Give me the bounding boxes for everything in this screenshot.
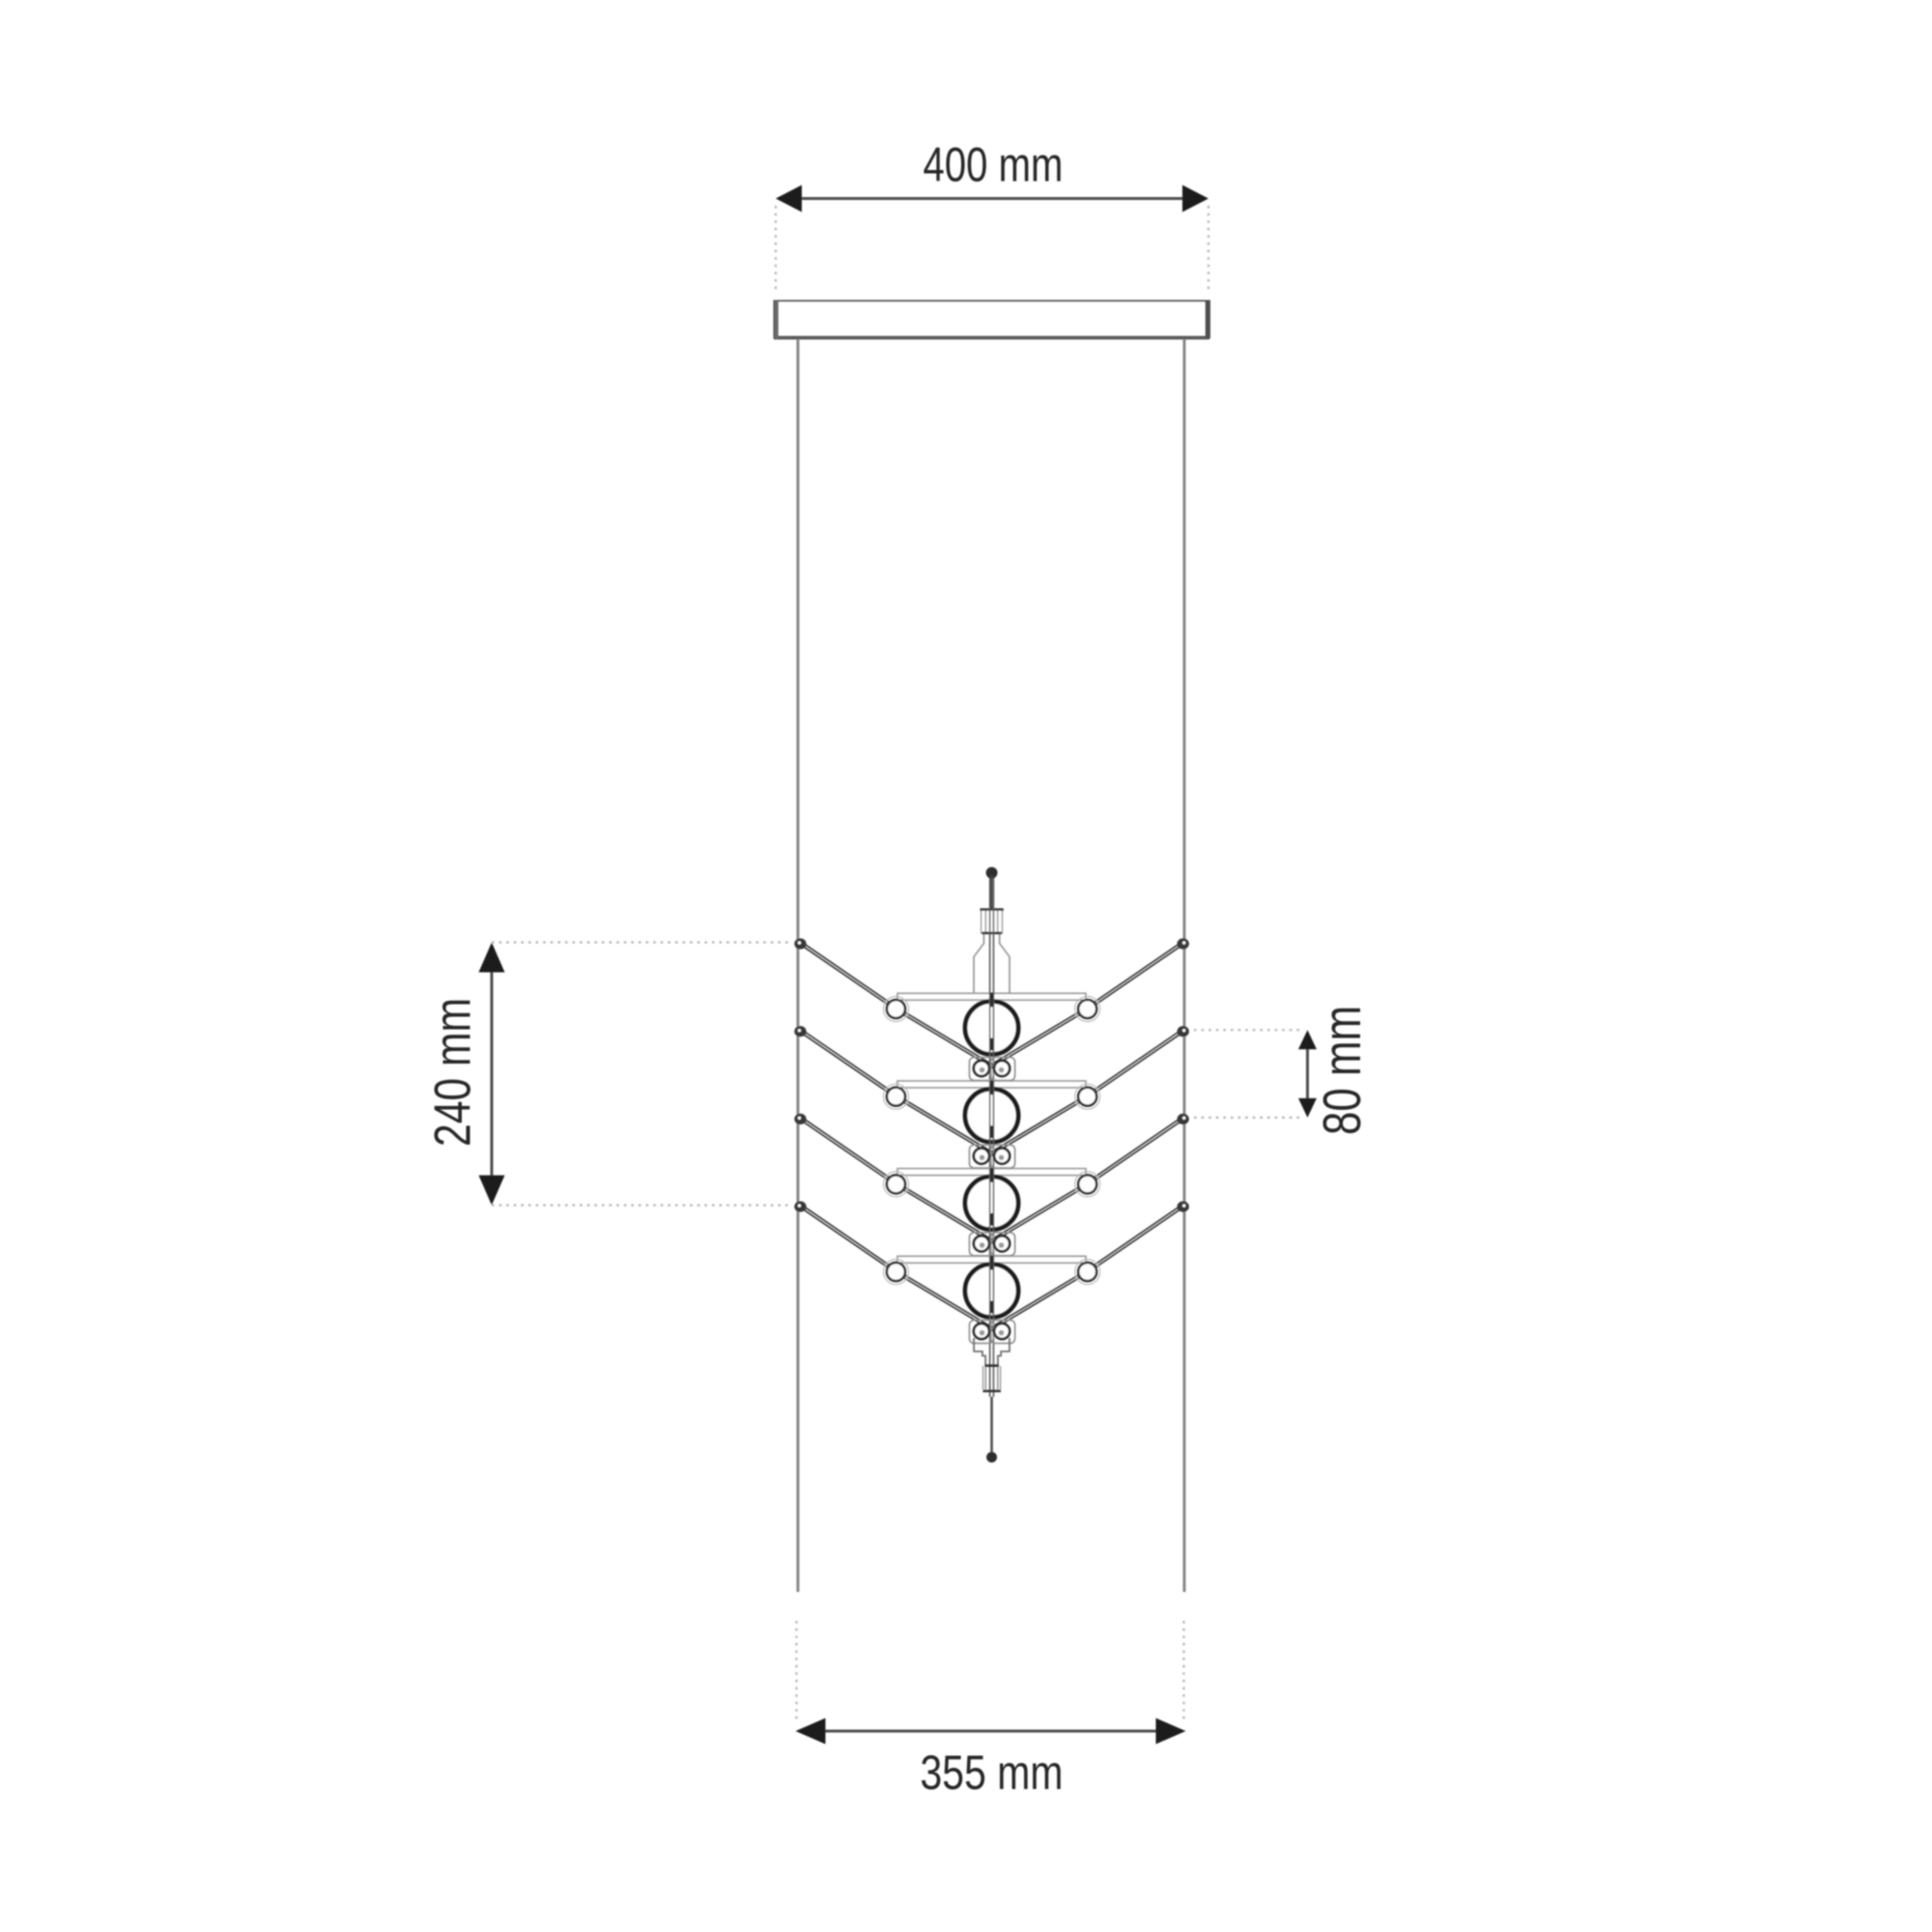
- svg-text:355 mm: 355 mm: [921, 1746, 1064, 1800]
- svg-text:80 mm: 80 mm: [1312, 1006, 1372, 1135]
- svg-text:240 mm: 240 mm: [425, 998, 482, 1147]
- svg-text:400 mm: 400 mm: [923, 138, 1064, 192]
